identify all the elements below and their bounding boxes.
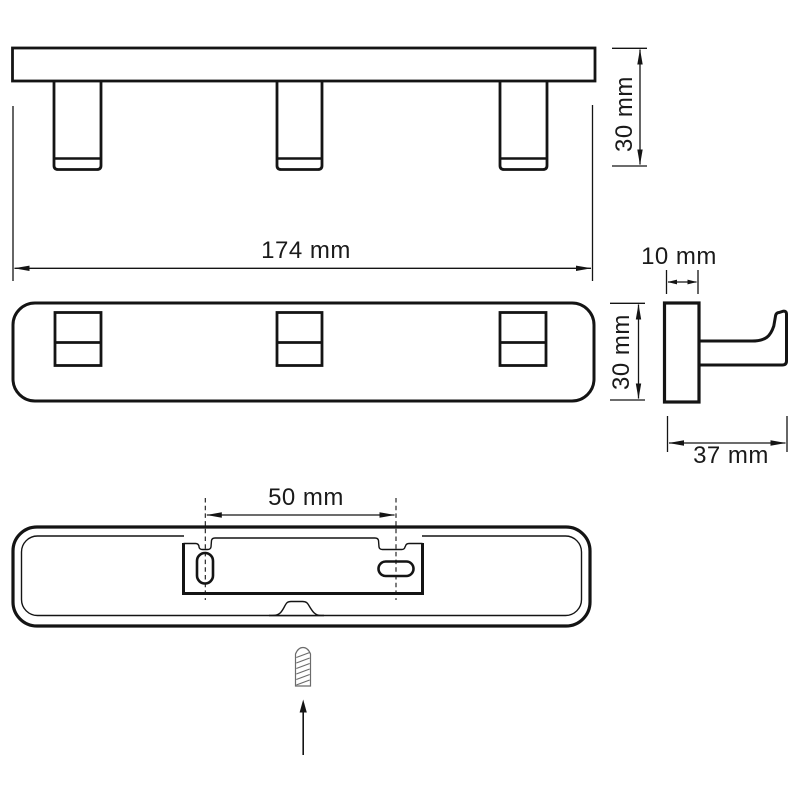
hook-front-3 [500, 81, 547, 170]
insert-direction-arrow [300, 700, 307, 756]
hook-wall-plate [665, 303, 700, 402]
drawing-linework [0, 0, 800, 800]
dim-label-plan-height: 30 mm [608, 292, 636, 412]
front-view [13, 48, 596, 170]
dim-label-side-width: 10 mm [609, 243, 749, 271]
plan-view [13, 303, 594, 401]
rail-bar-front [13, 48, 596, 81]
dim-label-front-height: 30 mm [611, 54, 639, 174]
side-view [665, 303, 787, 402]
hook-front-2 [277, 81, 322, 170]
technical-drawing: 30 mm 174 mm 30 mm 10 mm 37 mm 50 mm [0, 0, 800, 800]
dim-label-front-width: 174 mm [206, 237, 406, 265]
back-view [13, 498, 590, 626]
hook-front-1 [54, 81, 101, 170]
dim-label-side-depth: 37 mm [651, 442, 800, 470]
front-hooks [54, 81, 547, 170]
dim-label-hole-spacing: 50 mm [206, 484, 406, 512]
hook-profile [699, 311, 787, 365]
arrow-up-icon [300, 700, 307, 713]
mounting-screw [296, 648, 311, 687]
